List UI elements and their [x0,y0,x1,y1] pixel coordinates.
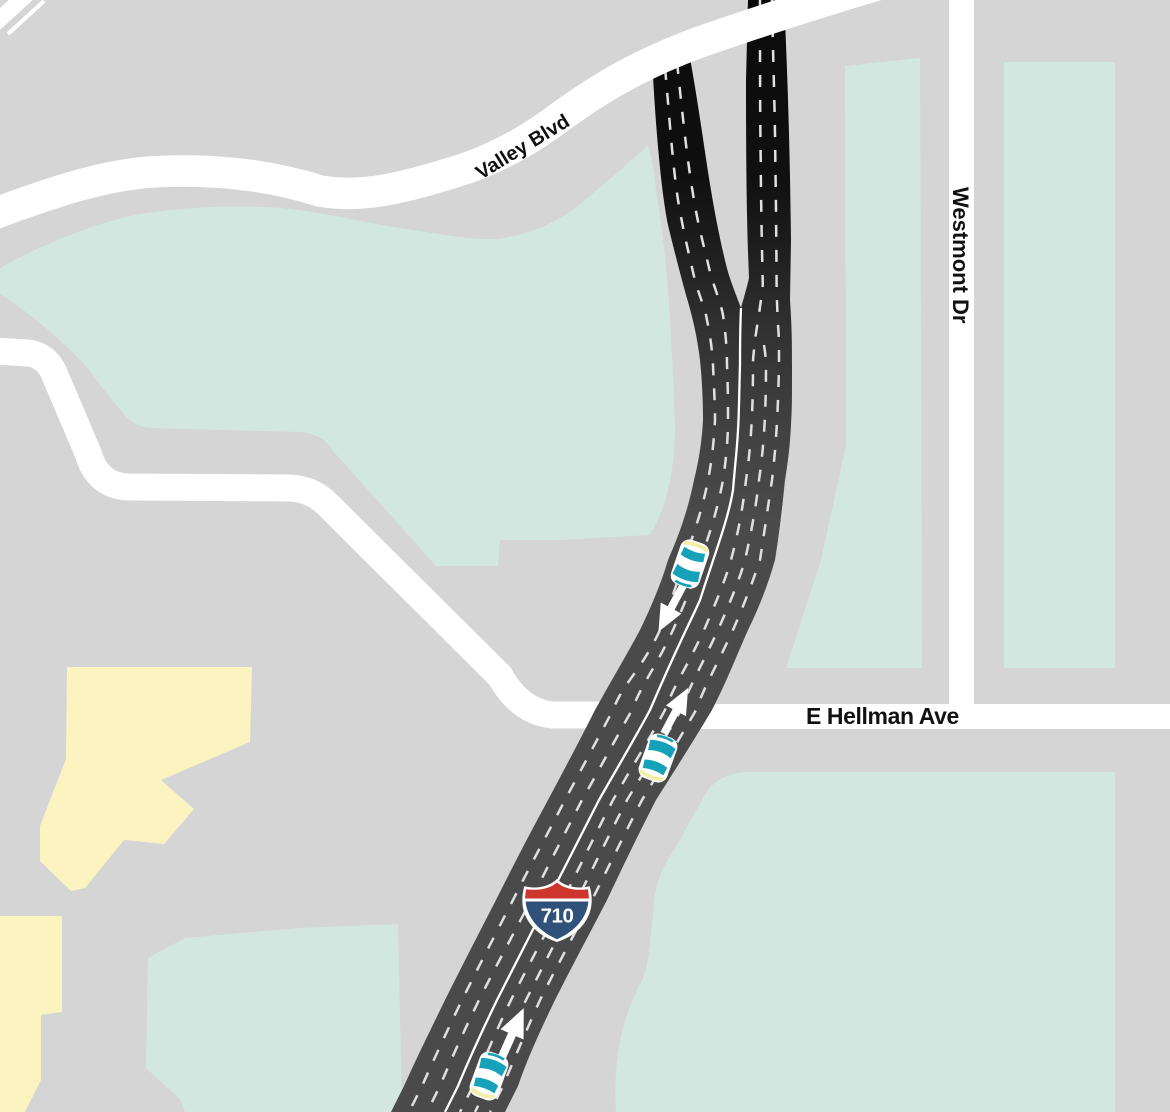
svg-text:Westmont Dr: Westmont Dr [948,187,973,324]
svg-text:710: 710 [541,905,574,928]
svg-text:E Hellman Ave: E Hellman Ave [806,703,959,729]
